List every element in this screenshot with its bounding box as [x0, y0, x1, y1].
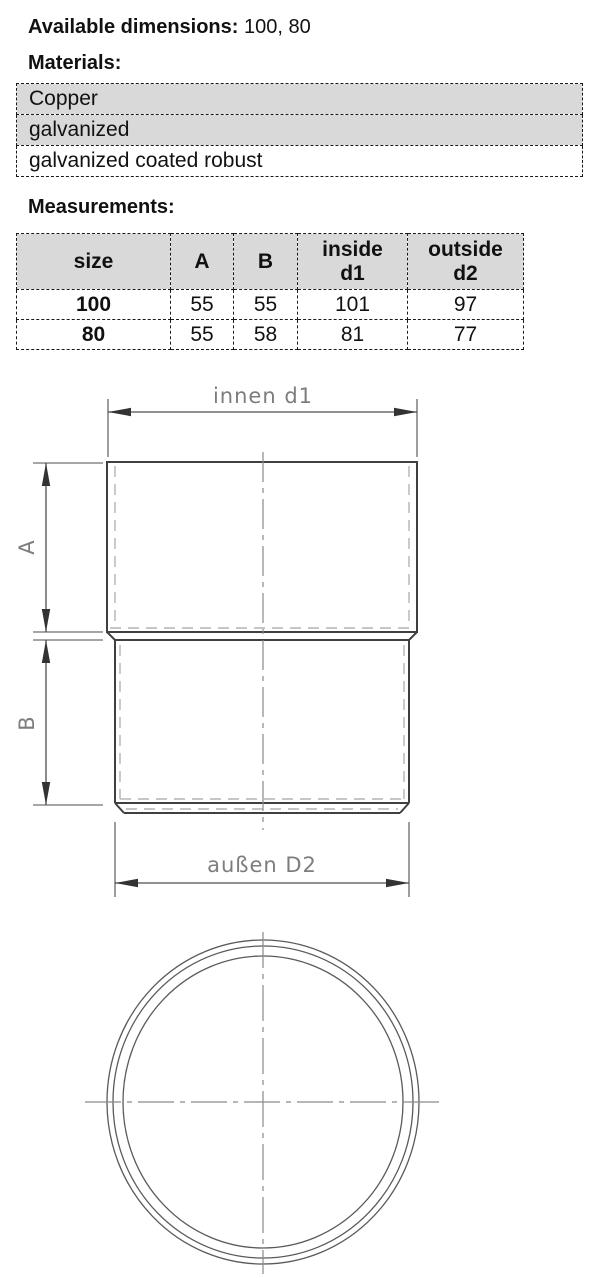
cell-a: 55 — [171, 320, 234, 350]
cell-b: 55 — [234, 290, 298, 320]
measurements-heading: Measurements: — [28, 196, 175, 219]
table-row: Copper — [17, 84, 583, 115]
arrow-left-icon — [108, 408, 131, 416]
dimension-inner-d1: innen d1 — [108, 384, 417, 457]
extension-lines-b — [33, 640, 103, 805]
table-row: galvanized coated robust — [17, 146, 583, 177]
arrow-right-icon — [394, 408, 417, 416]
column-header-line: outside — [408, 238, 523, 262]
material-cell: galvanized coated robust — [17, 146, 583, 177]
extension-lines-a — [33, 463, 103, 632]
column-header-inside-d1: inside d1 — [298, 234, 408, 290]
materials-heading: Materials: — [28, 52, 121, 75]
table-row: 80 55 58 81 77 — [17, 320, 524, 350]
label-a: A — [15, 539, 39, 554]
column-header-b: B — [234, 234, 298, 290]
column-header-outside-d2: outside d2 — [408, 234, 524, 290]
column-header-line: d2 — [408, 262, 523, 286]
table-row: 100 55 55 101 97 — [17, 290, 524, 320]
upper-socket-body — [107, 462, 417, 632]
lower-pipe-sides — [115, 640, 409, 803]
arrow-down-icon — [42, 782, 50, 805]
datasheet-page: Available dimensions: 100, 80 Materials:… — [0, 0, 600, 1278]
available-dimensions-value: 100, 80 — [244, 16, 311, 38]
arrow-up-icon — [42, 463, 50, 486]
cell-size: 100 — [17, 290, 171, 320]
dimension-a: A — [15, 463, 103, 632]
arrow-left-icon — [115, 879, 138, 887]
hidden-lines — [110, 466, 414, 809]
column-header-line: inside — [298, 238, 407, 262]
bottom-view — [85, 932, 440, 1274]
cell-b: 58 — [234, 320, 298, 350]
column-header-line: d1 — [298, 262, 407, 286]
transition-chamfer — [107, 632, 417, 640]
materials-table: Copper galvanized galvanized coated robu… — [16, 83, 583, 177]
measurements-table: size A B inside d1 outside d2 100 55 55 … — [16, 233, 524, 350]
arrow-right-icon — [386, 879, 409, 887]
arrow-up-icon — [42, 640, 50, 663]
cell-outside-d2: 97 — [408, 290, 524, 320]
column-header-size: size — [17, 234, 171, 290]
cell-inside-d1: 81 — [298, 320, 408, 350]
technical-drawing: innen d1 A B außen D2 — [0, 370, 600, 1278]
dimension-outer-d2: außen D2 — [115, 822, 409, 897]
arrow-down-icon — [42, 609, 50, 632]
label-inner-d1: innen d1 — [213, 384, 313, 408]
cell-size: 80 — [17, 320, 171, 350]
table-header-row: size A B inside d1 outside d2 — [17, 234, 524, 290]
label-outer-d2: außen D2 — [207, 853, 317, 877]
material-cell: Copper — [17, 84, 583, 115]
material-cell: galvanized — [17, 115, 583, 146]
dimension-b: B — [15, 640, 103, 805]
label-b: B — [15, 715, 39, 730]
available-dimensions-line: Available dimensions: 100, 80 — [28, 14, 311, 40]
available-dimensions-label: Available dimensions: — [28, 16, 238, 38]
cell-a: 55 — [171, 290, 234, 320]
cell-inside-d1: 101 — [298, 290, 408, 320]
column-header-a: A — [171, 234, 234, 290]
cell-outside-d2: 77 — [408, 320, 524, 350]
bottom-chamfer — [115, 803, 409, 813]
front-view-outline — [107, 462, 417, 813]
table-row: galvanized — [17, 115, 583, 146]
